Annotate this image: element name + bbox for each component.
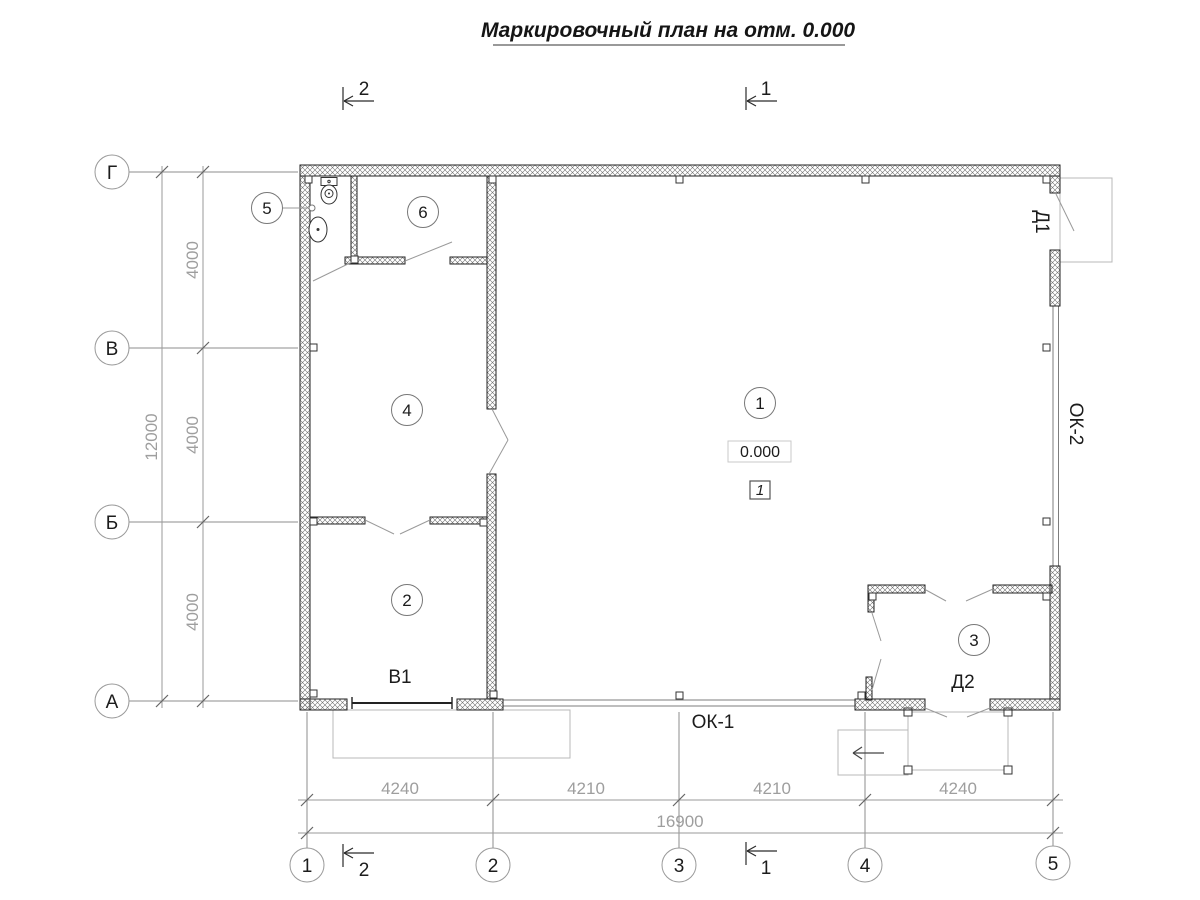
room-number-3: 3	[969, 631, 978, 650]
window-ok1-label: ОК-1	[692, 712, 735, 733]
axis-col-5: 5	[1048, 854, 1059, 875]
axis-col-2: 2	[488, 856, 499, 877]
plan-note-value: 1	[756, 482, 764, 499]
dim-left-2: 4000	[183, 416, 202, 454]
drawing-title: Маркировочный план на отм. 0.000	[481, 19, 855, 42]
window-ok2	[1053, 306, 1059, 566]
dim-bottom-2: 4210	[567, 779, 605, 798]
wall-center-lower	[487, 474, 496, 699]
room-number-4: 4	[402, 401, 411, 420]
door-d2-label: Д2	[951, 672, 974, 693]
wall-wc-divider	[351, 176, 357, 257]
wall-bottom-seg3	[855, 699, 925, 710]
window-ok1	[503, 700, 855, 706]
wall-top	[300, 165, 1060, 176]
elevation-mark: 0.000	[728, 441, 791, 462]
door-d1-label: Д1	[1031, 210, 1052, 233]
wall-vestibule-top-2	[993, 585, 1052, 593]
dim-bottom-total: 16900	[656, 812, 703, 831]
ramp-direction-arrow	[853, 747, 884, 759]
wall-wc-bottom-2	[450, 257, 487, 264]
axis-row-a: А	[106, 692, 119, 713]
wall-axis-b-2	[430, 517, 487, 524]
section-marks	[343, 87, 777, 867]
axis-col-3: 3	[674, 856, 685, 877]
wall-bottom-seg2	[457, 699, 503, 710]
wall-bottom-seg4	[990, 699, 1060, 710]
dim-left-total: 12000	[142, 413, 161, 460]
window-ok2-label: ОК-2	[1065, 403, 1086, 446]
section-label-top-2: 2	[359, 79, 370, 100]
wall-axis-b-1	[310, 517, 365, 524]
section-label-bottom-2: 2	[359, 860, 370, 881]
walls	[300, 165, 1060, 710]
gate-v1-label: В1	[388, 667, 411, 688]
wall-vestibule-pier	[866, 677, 872, 700]
wall-center-upper	[487, 176, 496, 409]
axis-row-g: Г	[107, 163, 117, 184]
sink-icon	[309, 217, 327, 242]
exterior-constructions	[333, 178, 1112, 775]
wall-right-seg1	[1050, 176, 1060, 193]
axis-grid	[129, 172, 1053, 848]
axis-bubbles: Г В Б А 1 2 3 4 5	[95, 155, 1070, 882]
dimension-labels: 4240 4210 4210 4240 16900 4000 4000 4000…	[142, 241, 977, 831]
wall-bottom-seg1	[300, 699, 347, 710]
column-markers	[305, 176, 1050, 699]
drawing-sheet: Маркировочный план на отм. 0.000 4240	[0, 0, 1200, 900]
door-d1-landing	[1060, 178, 1112, 262]
room-number-2: 2	[402, 591, 411, 610]
plan-note-box: 1	[750, 481, 770, 499]
entrance-apron	[333, 710, 570, 758]
dim-bottom-4: 4240	[939, 779, 977, 798]
axis-row-b: Б	[106, 513, 118, 534]
elevation-value: 0.000	[740, 444, 780, 461]
floor-plan-svg: Маркировочный план на отм. 0.000 4240	[0, 0, 1200, 900]
dimension-lines	[156, 166, 1063, 839]
dim-left-3: 4000	[183, 593, 202, 631]
room-number-1: 1	[755, 394, 764, 413]
gate-v1	[352, 697, 452, 709]
section-label-bottom-1: 1	[761, 858, 772, 879]
toilet-icon	[321, 178, 337, 205]
dim-bottom-1: 4240	[381, 779, 419, 798]
porch	[908, 712, 1008, 770]
room-number-6: 6	[418, 203, 427, 222]
dim-bottom-3: 4210	[753, 779, 791, 798]
axis-col-1: 1	[302, 856, 313, 877]
axis-col-4: 4	[860, 856, 871, 877]
dim-left-1: 4000	[183, 241, 202, 279]
wall-left	[300, 176, 310, 710]
axis-row-v: В	[106, 339, 119, 360]
room-number-5: 5	[262, 199, 271, 218]
wall-right-seg2	[1050, 250, 1060, 306]
wall-vestibule-top-1	[868, 585, 925, 593]
section-label-top-1: 1	[761, 79, 772, 100]
